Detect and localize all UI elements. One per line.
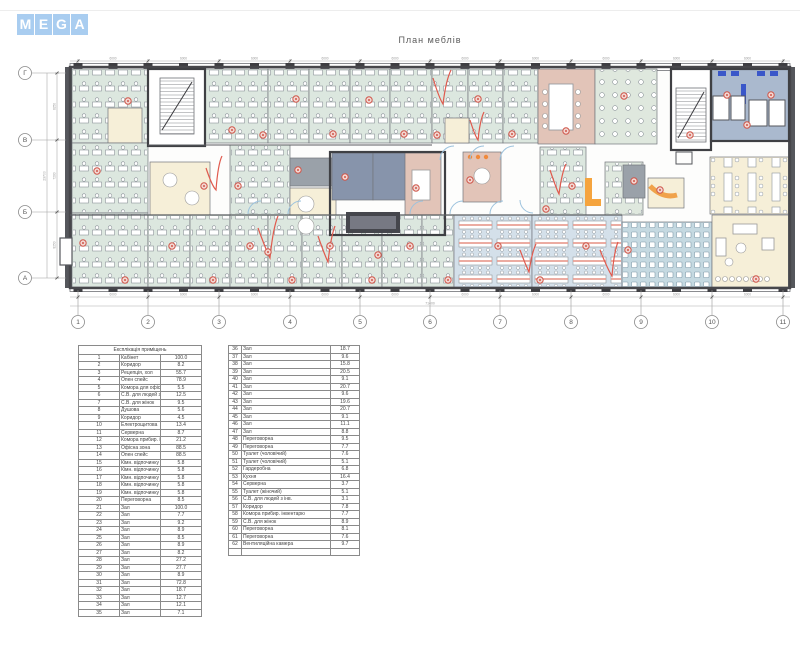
legend-cell-ar: 5.5	[161, 384, 202, 392]
legend-cell-no: 22	[79, 512, 120, 520]
legend-cell-no: 56	[229, 496, 242, 504]
legend-cell-ar: 7.6	[331, 451, 360, 459]
legend-cell-no: 37	[229, 353, 242, 361]
legend-cell-ar: 12.5	[161, 392, 202, 400]
legend-cell-ar: 88.5	[161, 444, 202, 452]
legend-row: 16Кімн. відпочинку5.8	[79, 467, 202, 475]
legend-cell-ar: 9.5	[161, 399, 202, 407]
svg-text:7: 7	[498, 319, 502, 326]
legend-row	[229, 548, 360, 556]
legend-row: 8Душова5.6	[79, 407, 202, 415]
furniture	[765, 277, 770, 282]
legend-cell-nm: Серверна	[242, 481, 331, 489]
room	[422, 215, 454, 287]
legend-table-2: 36Зал18.737Зал9.638Зал15.839Зал20.540Зал…	[228, 345, 360, 556]
legend-cell-ar: 100.0	[161, 504, 202, 512]
legend-cell-no: 29	[79, 564, 120, 572]
furniture	[576, 90, 581, 95]
legend-cell-no: 1	[79, 354, 120, 362]
legend-cell-nm: Зал	[242, 428, 331, 436]
legend-row: 51Туалет (чоловічий)5.1	[229, 458, 360, 466]
furniture	[731, 96, 745, 120]
page: M E G A План меблів	[0, 0, 800, 658]
legend-row: 27Зал8.2	[79, 549, 202, 557]
svg-text:Б: Б	[23, 209, 27, 216]
furniture	[716, 277, 721, 282]
legend-cell-ar: 7.7	[161, 512, 202, 520]
legend-cell-no: 55	[229, 488, 242, 496]
legend-cell-no: 61	[229, 533, 242, 541]
furniture	[576, 102, 581, 107]
dim-text: 6000	[180, 293, 187, 297]
legend-cell-no: 44	[229, 406, 242, 414]
legend-cell-nm: Рецепція, хол	[120, 369, 161, 377]
furniture	[769, 100, 785, 126]
furniture	[298, 196, 314, 212]
room	[503, 69, 538, 143]
room	[350, 69, 390, 143]
legend-cell-no: 25	[79, 534, 120, 542]
room-number-marker	[753, 276, 759, 282]
room-number-marker	[260, 132, 266, 138]
legend-cell-ar: 5.8	[161, 482, 202, 490]
legend-cell-ar: 12.1	[161, 602, 202, 610]
room	[108, 108, 142, 143]
legend-cell-ar: 18.7	[161, 587, 202, 595]
legend-cell-ar: 16.4	[331, 473, 360, 481]
legend-row: 45Зал9.1	[229, 413, 360, 421]
svg-text:2: 2	[146, 319, 150, 326]
svg-text:9: 9	[639, 319, 643, 326]
dim-text: 6000	[109, 57, 116, 61]
legend-row: 6С.В. для людей з інв.12.5	[79, 392, 202, 400]
room-number-marker	[295, 167, 301, 173]
room-number-marker	[687, 132, 693, 138]
room-number-marker	[625, 247, 631, 253]
dim-text: 8250	[53, 103, 57, 110]
legend-cell-nm: Коридор	[120, 362, 161, 370]
legend-cell-ar: 72.8	[161, 579, 202, 587]
dim-text: 6000	[461, 293, 468, 297]
legend-cell-ar: 8.8	[331, 428, 360, 436]
room-number-marker	[631, 178, 637, 184]
legend-cell-nm: Опен спейс	[120, 452, 161, 460]
legend-cell-nm: Зал	[120, 572, 161, 580]
room-number-marker	[342, 174, 348, 180]
svg-text:1: 1	[76, 319, 80, 326]
furniture	[713, 96, 729, 120]
legend-cell-no: 9	[79, 414, 120, 422]
legend-cell-nm: С.В. для жінок	[120, 399, 161, 407]
legend-cell-ar: 8.1	[331, 526, 360, 534]
legend-row: 52Гардеробна6.8	[229, 466, 360, 474]
legend-row: 2Коридор8.2	[79, 362, 202, 370]
legend-cell-no: 49	[229, 443, 242, 451]
room	[268, 69, 309, 143]
dim-text: 6000	[109, 293, 116, 297]
room-number-marker	[247, 243, 253, 249]
legend-cell-nm: Кімн. відпочинку	[120, 489, 161, 497]
legend-cell-nm: Зал	[242, 398, 331, 406]
room-number-marker	[375, 252, 381, 258]
svg-text:10: 10	[708, 319, 716, 326]
room-number-marker	[210, 277, 216, 283]
legend-cell-ar: 20.5	[331, 368, 360, 376]
legend-cell-ar: 9.1	[331, 413, 360, 421]
legend-row: 5Комора для офіс. обладнання5.5	[79, 384, 202, 392]
room-number-marker	[434, 132, 440, 138]
legend-row: 15Кімн. відпочинку5.8	[79, 459, 202, 467]
furniture	[716, 238, 726, 256]
legend-cell-no: 48	[229, 436, 242, 444]
legend-row: 61Переговорна7.6	[229, 533, 360, 541]
legend-cell-no: 26	[79, 542, 120, 550]
legend-cell-ar: 6.8	[331, 466, 360, 474]
legend-cell-nm: Кімн. відпочинку	[120, 459, 161, 467]
room-number-marker	[509, 131, 515, 137]
room-number-marker	[80, 240, 86, 246]
legend-cell-ar: 7.7	[331, 511, 360, 519]
room-number-marker	[122, 277, 128, 283]
legend-row: 10Електрощитова13.4	[79, 422, 202, 430]
legend-cell-no: 2	[79, 362, 120, 370]
legend-cell-nm	[242, 548, 331, 556]
legend-cell-no: 46	[229, 421, 242, 429]
legend-cell-nm: Кухня	[242, 473, 331, 481]
legend-cell-ar: 9.6	[331, 353, 360, 361]
legend-cell-ar: 5.8	[161, 459, 202, 467]
legend-cell-nm: С.В. для жінок	[242, 518, 331, 526]
room-number-marker	[401, 131, 407, 137]
legend-cell-no: 21	[79, 504, 120, 512]
legend-cell-ar: 9.5	[331, 436, 360, 444]
furniture	[543, 102, 548, 107]
legend-cell-ar: 8.2	[161, 362, 202, 370]
legend-cell-no: 12	[79, 437, 120, 445]
legend-cell-nm: Переговорна	[242, 443, 331, 451]
legend-cell-no: 52	[229, 466, 242, 474]
svg-text:8: 8	[569, 319, 573, 326]
legend-cell-no: 43	[229, 398, 242, 406]
legend-row: 28Зал27.2	[79, 557, 202, 565]
room-number-marker	[407, 243, 413, 249]
legend-row: 57Коридор7.8	[229, 503, 360, 511]
legend-row: 48Переговорна9.5	[229, 436, 360, 444]
floor-plan: ГВБА123456789101160006000600060006000600…	[0, 0, 800, 340]
legend-cell-nm: Зал	[242, 406, 331, 414]
legend-cell-nm: Вентиляційна камера	[242, 541, 331, 549]
legend-row: 21Зал100.0	[79, 504, 202, 512]
legend-cell-no: 45	[229, 413, 242, 421]
legend-cell-ar: 9.6	[331, 391, 360, 399]
legend-cell-nm: Зал	[120, 579, 161, 587]
furniture	[770, 71, 778, 76]
legend-cell-nm: Переговорна	[242, 526, 331, 534]
legend-cell-no: 41	[229, 383, 242, 391]
legend-cell-nm: Зал	[242, 376, 331, 384]
legend-row: 59С.В. для жінок8.9	[229, 518, 360, 526]
dim-text: 6000	[391, 293, 398, 297]
legend-row: 38Зал15.8	[229, 361, 360, 369]
dim-text: 6000	[251, 57, 258, 61]
room-number-marker	[563, 128, 569, 134]
furniture	[737, 277, 742, 282]
legend-cell-ar: 8.9	[161, 542, 202, 550]
svg-text:Г: Г	[23, 70, 27, 77]
dim-text: 6000	[391, 57, 398, 61]
legend-title: Експлікація приміщень	[79, 346, 202, 355]
legend-cell-no: 59	[229, 518, 242, 526]
dim-text: 7200	[53, 172, 57, 179]
legend-cell-nm: Комора прибир. інвентарю	[242, 511, 331, 519]
room-number-marker	[327, 243, 333, 249]
legend-cell-nm: Зал	[120, 557, 161, 565]
legend-cell-ar: 12.7	[161, 594, 202, 602]
legend-row: 55Туалет (жіночий)5.1	[229, 488, 360, 496]
furniture	[585, 199, 601, 206]
legend-cell-no: 38	[229, 361, 242, 369]
legend-cell-no: 7	[79, 399, 120, 407]
legend-cell-no: 62	[229, 541, 242, 549]
legend-cell-nm: С.В. для людей з інв.	[242, 496, 331, 504]
furniture	[484, 155, 488, 159]
svg-text:В: В	[23, 137, 27, 144]
legend-cell-nm: Офісна зона	[120, 444, 161, 452]
legend-cell-nm: Переговорна	[120, 497, 161, 505]
legend-row: 25Зал8.5	[79, 534, 202, 542]
room	[205, 69, 268, 143]
legend-cell-nm: Зал	[120, 549, 161, 557]
legend-row: 17Кімн. відпочинку5.8	[79, 474, 202, 482]
dim-text: 6000	[744, 57, 751, 61]
room-number-marker	[537, 277, 543, 283]
legend-cell-nm: Зал	[120, 512, 161, 520]
room-number-marker	[768, 92, 774, 98]
room-number-marker	[369, 277, 375, 283]
furniture	[60, 238, 72, 265]
legend-cell-ar: 8.9	[331, 518, 360, 526]
legend-cell-nm: Зал	[242, 383, 331, 391]
legend-cell-ar: 20.7	[331, 406, 360, 414]
furniture	[474, 168, 490, 184]
legend-cell-no: 18	[79, 482, 120, 490]
furniture	[543, 90, 548, 95]
legend-row: 36Зал18.7	[229, 346, 360, 354]
room-number-marker	[229, 127, 235, 133]
legend-row: 49Переговорна7.7	[229, 443, 360, 451]
legend-cell-no: 35	[79, 609, 120, 617]
furniture	[736, 243, 746, 253]
legend-cell-nm: Зал	[120, 519, 161, 527]
legend-cell-ar: 7.8	[331, 503, 360, 511]
legend-row: 53Кухня16.4	[229, 473, 360, 481]
room-number-marker	[293, 96, 299, 102]
room	[230, 215, 268, 287]
legend-cell-no: 5	[79, 384, 120, 392]
legend-cell-nm: Переговорна	[242, 533, 331, 541]
legend-row: 20Переговорна8.5	[79, 497, 202, 505]
furniture	[543, 124, 548, 129]
room-number-marker	[445, 277, 451, 283]
legend-row: 7С.В. для жінок9.5	[79, 399, 202, 407]
legend-cell-ar: 3.7	[331, 481, 360, 489]
room	[332, 153, 373, 200]
legend-cell-nm: Зал	[242, 368, 331, 376]
room-number-marker	[621, 93, 627, 99]
legend-cell-nm: Опен спейс	[120, 377, 161, 385]
legend-cell-ar: 100.0	[161, 354, 202, 362]
legend-cell-nm: Зал	[120, 534, 161, 542]
legend-cell-no: 14	[79, 452, 120, 460]
furniture	[718, 71, 726, 76]
furniture	[744, 277, 749, 282]
room-number-marker	[169, 243, 175, 249]
svg-text:11: 11	[780, 319, 787, 326]
furniture	[733, 224, 757, 234]
svg-text:А: А	[23, 275, 28, 282]
room	[190, 215, 230, 287]
svg-text:3: 3	[217, 319, 221, 326]
legend-cell-ar: 18.7	[331, 346, 360, 354]
furniture	[725, 258, 733, 266]
legend-cell-no: 51	[229, 458, 242, 466]
legend-cell-ar: 7.6	[331, 533, 360, 541]
legend-cell-nm: Кабінет	[120, 354, 161, 362]
legend-cell-ar: 5.1	[331, 488, 360, 496]
legend-row: 9Коридор4.5	[79, 414, 202, 422]
svg-text:4: 4	[288, 319, 292, 326]
dim-text: 8250	[53, 241, 57, 248]
legend-row: 23Зал9.2	[79, 519, 202, 527]
legend-cell-ar: 8.2	[161, 549, 202, 557]
legend-cell-nm: Зал	[120, 527, 161, 535]
legend-cell-nm: Гардеробна	[242, 466, 331, 474]
legend-row: 18Кімн. відпочинку5.8	[79, 482, 202, 490]
svg-text:5: 5	[358, 319, 362, 326]
room-number-marker	[366, 97, 372, 103]
legend-cell-ar: 7.7	[331, 443, 360, 451]
legend-cell-no: 50	[229, 451, 242, 459]
legend-cell-ar: 7.1	[161, 609, 202, 617]
dim-text: 6000	[180, 57, 187, 61]
legend-cell-no: 47	[229, 428, 242, 436]
legend-cell-ar: 78.9	[161, 377, 202, 385]
legend-row: 4Опен спейс78.9	[79, 377, 202, 385]
legend-row: 60Переговорна8.1	[229, 526, 360, 534]
furniture	[757, 71, 765, 76]
room-number-marker	[94, 168, 100, 174]
legend-row: 35Зал7.1	[79, 609, 202, 617]
legend-cell-ar: 8.9	[161, 527, 202, 535]
room-number-marker	[744, 122, 750, 128]
room	[445, 118, 469, 143]
legend-cell-no: 54	[229, 481, 242, 489]
dim-text: 6000	[321, 293, 328, 297]
furniture	[749, 100, 767, 126]
legend-row: 40Зал9.1	[229, 376, 360, 384]
legend-cell-no: 19	[79, 489, 120, 497]
legend-cell-ar: 5.1	[331, 458, 360, 466]
dim-text: 6000	[602, 57, 609, 61]
legend-cell-ar: 4.5	[161, 414, 202, 422]
room-number-marker	[235, 183, 241, 189]
legend-cell-ar: 5.8	[161, 467, 202, 475]
legend-cell-nm: Коридор	[120, 414, 161, 422]
legend-cell-ar: 8.5	[161, 497, 202, 505]
legend-row: 26Зал8.9	[79, 542, 202, 550]
legend-cell-nm: Зал	[242, 353, 331, 361]
room	[710, 157, 790, 214]
legend-row: 37Зал9.6	[229, 353, 360, 361]
legend-row: 30Зал8.9	[79, 572, 202, 580]
stair-flight	[160, 78, 194, 134]
legend-row: 29Зал27.7	[79, 564, 202, 572]
legend-cell-nm: Комора для офіс. обладнання	[120, 384, 161, 392]
legend-cell-no: 8	[79, 407, 120, 415]
legend-cell-no: 24	[79, 527, 120, 535]
room	[268, 215, 302, 287]
legend-cell-nm: Зал	[242, 413, 331, 421]
dim-text: 6000	[321, 57, 328, 61]
dim-text: 6000	[251, 293, 258, 297]
legend-cell-no: 16	[79, 467, 120, 475]
room	[309, 69, 350, 143]
legend-row: 50Туалет (чоловічий)7.6	[229, 451, 360, 459]
legend-cell-no: 30	[79, 572, 120, 580]
furniture	[350, 216, 396, 229]
legend-cell-nm: Зал	[242, 391, 331, 399]
legend-cell-no	[229, 548, 242, 556]
furniture	[163, 173, 177, 187]
room	[230, 145, 290, 215]
legend-cell-no: 33	[79, 594, 120, 602]
legend-cell-ar: 20.7	[331, 383, 360, 391]
room-number-marker	[569, 183, 575, 189]
room-number-marker	[330, 131, 336, 137]
legend-cell-no: 32	[79, 587, 120, 595]
legend-cell-no: 31	[79, 579, 120, 587]
legend-cell-ar: 9.7	[331, 541, 360, 549]
legend-cell-no: 6	[79, 392, 120, 400]
furniture	[298, 218, 314, 234]
room-number-marker	[657, 187, 663, 193]
legend-cell-no: 3	[79, 369, 120, 377]
legend-cell-no: 23	[79, 519, 120, 527]
dim-text: 6000	[744, 293, 751, 297]
furniture	[476, 155, 480, 159]
legend-cell-no: 4	[79, 377, 120, 385]
legend-cell-nm: Зал	[120, 542, 161, 550]
legend-row: 19Кімн. відпочинку5.8	[79, 489, 202, 497]
legend-cell-no: 57	[229, 503, 242, 511]
legend-cell-ar: 8.9	[161, 572, 202, 580]
furniture	[543, 114, 548, 119]
room	[72, 143, 148, 213]
legend-cell-no: 17	[79, 474, 120, 482]
legend-cell-no: 53	[229, 473, 242, 481]
legend-cell-ar: 11.1	[331, 421, 360, 429]
room-number-marker	[125, 98, 131, 104]
furniture	[731, 71, 739, 76]
legend-row: 39Зал20.5	[229, 368, 360, 376]
legend-cell-nm: Зал	[120, 594, 161, 602]
legend-cell-nm: Зал	[242, 346, 331, 354]
dim-text: 6000	[461, 57, 468, 61]
room-number-marker	[495, 243, 501, 249]
legend-cell-nm: Зал	[120, 587, 161, 595]
legend-row: 3Рецепція, хол55.7	[79, 369, 202, 377]
room-number-marker	[413, 185, 419, 191]
